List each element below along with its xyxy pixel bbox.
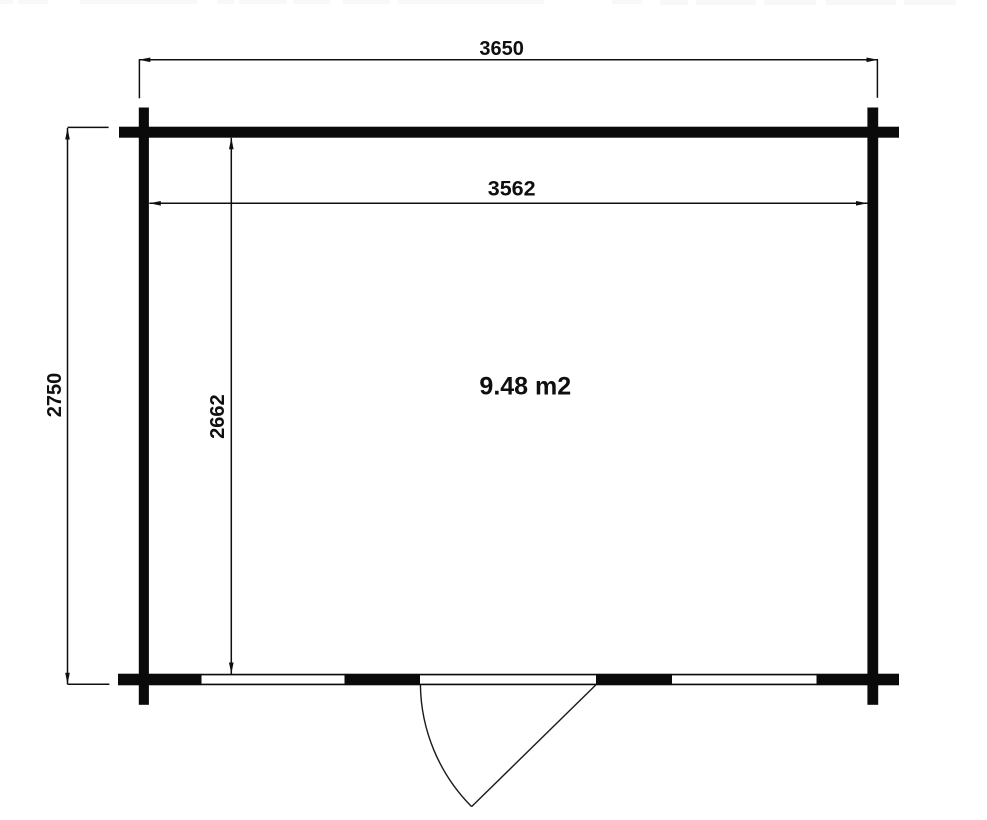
svg-text:3650: 3650	[479, 38, 524, 60]
svg-text:2750: 2750	[44, 373, 66, 418]
svg-text:9.48 m2: 9.48 m2	[479, 372, 571, 400]
svg-text:3562: 3562	[488, 176, 536, 200]
svg-text:2662: 2662	[207, 394, 229, 439]
